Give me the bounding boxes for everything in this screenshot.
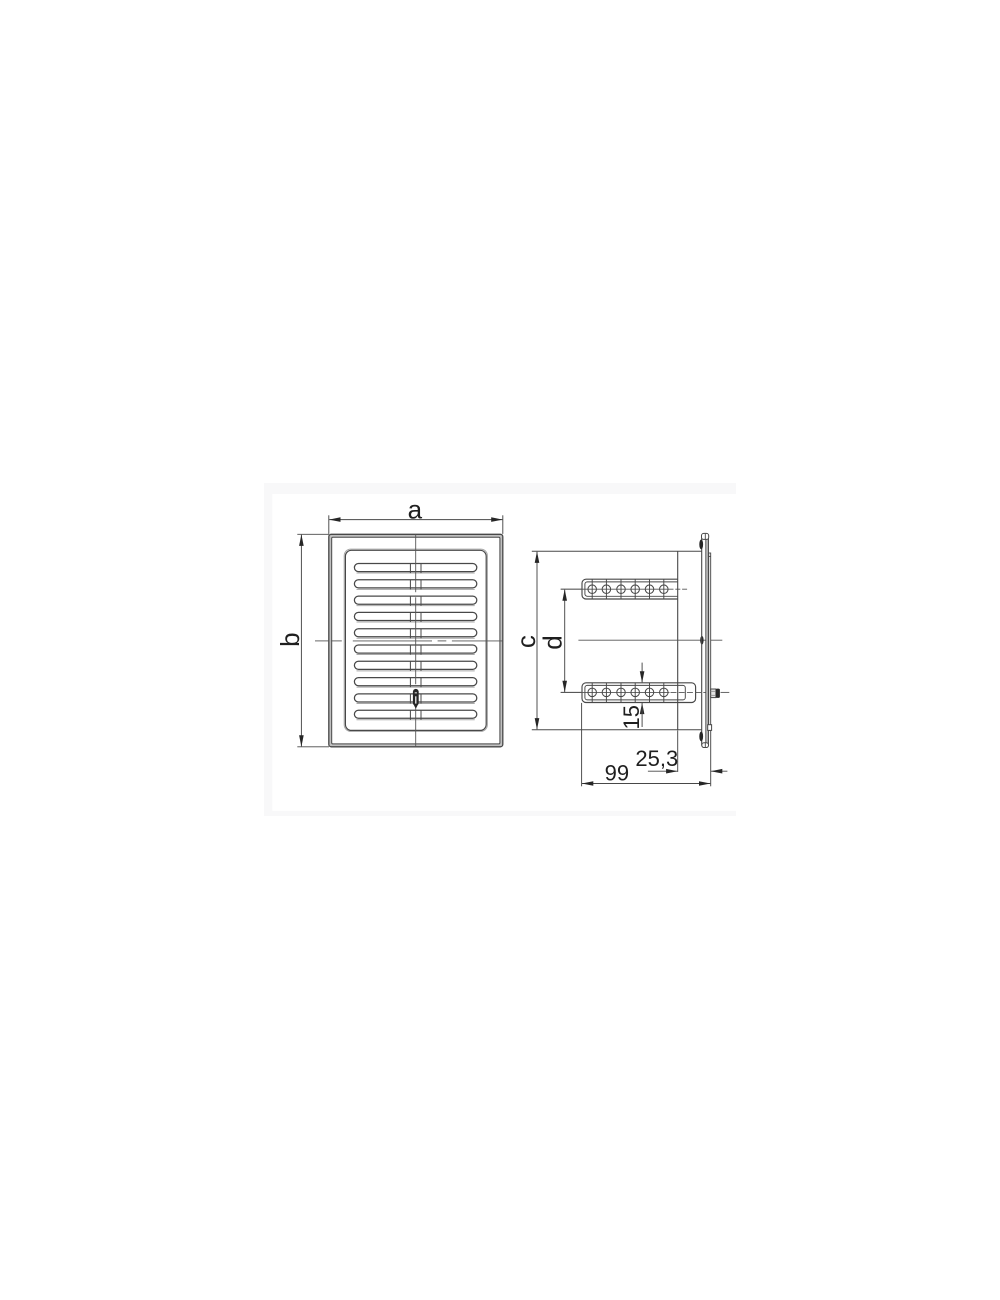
- svg-text:99: 99: [605, 760, 629, 785]
- svg-text:25,3: 25,3: [635, 746, 678, 771]
- svg-text:c: c: [511, 635, 541, 648]
- svg-text:d: d: [538, 635, 568, 649]
- svg-text:a: a: [408, 494, 423, 524]
- svg-text:b: b: [275, 632, 305, 646]
- svg-text:15: 15: [619, 705, 644, 729]
